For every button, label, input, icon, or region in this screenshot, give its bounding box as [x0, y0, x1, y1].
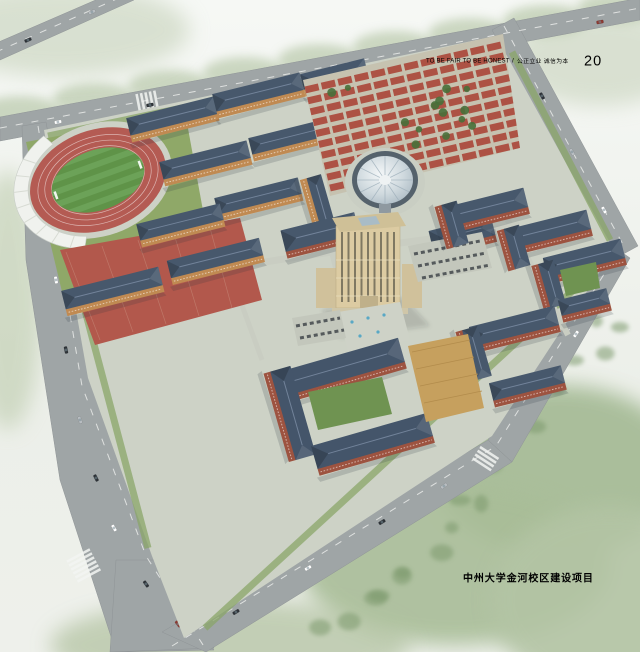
project-title: 中州大学金河校区建设项目: [463, 572, 594, 585]
motto-chinese: 公正立业 诚信为本: [517, 57, 569, 65]
motto-english: TO BE FAIR TO BE HONEST: [426, 59, 510, 65]
campus-aerial-rendering: TO BE FAIR TO BE HONEST / 公正立业 诚信为本 20 中…: [0, 0, 640, 652]
brochure-page: TO BE FAIR TO BE HONEST / 公正立业 诚信为本 20 中…: [0, 0, 640, 652]
gymnasium-dome: [345, 148, 425, 216]
motto-separator: /: [512, 58, 514, 65]
page-number: 20: [584, 54, 602, 70]
